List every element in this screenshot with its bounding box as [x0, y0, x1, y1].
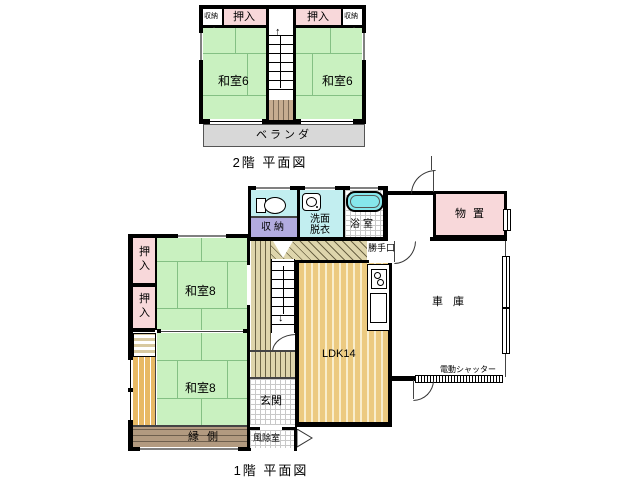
kitchen-counter [367, 264, 390, 331]
room-label: ベランダ [256, 129, 312, 141]
tatami-line [330, 28, 331, 53]
room-label: 和室8 [185, 285, 216, 298]
sink-icon [302, 193, 321, 211]
tatami-line [296, 53, 362, 54]
stair-lower-flight [269, 100, 293, 120]
room-label: 玄関 [260, 395, 282, 407]
sliding-door-opening [247, 265, 250, 305]
wall-segment [295, 422, 392, 427]
tatami-line [157, 398, 247, 399]
room-label: 風除室 [253, 434, 280, 444]
tatami-line [203, 95, 266, 96]
fusuma-line [157, 331, 247, 332]
door-leaf [394, 241, 395, 262]
window [305, 186, 335, 190]
tatami-line [296, 95, 362, 96]
floor2-title: 2階 平面図 [195, 152, 345, 171]
window [128, 392, 133, 420]
kitchen-sink-icon [370, 293, 387, 323]
hallway-floor [271, 350, 295, 377]
stair-arrow-up-icon: ↑ [275, 27, 281, 38]
window [178, 234, 226, 238]
wall-segment [341, 9, 343, 26]
tokonoma-shelf [133, 333, 156, 357]
room-label: 和室6 [218, 75, 249, 88]
tatami-line [203, 53, 266, 54]
door-arc-icon [413, 380, 434, 401]
boundary-line [431, 156, 432, 170]
room-label: 収納 [261, 222, 287, 233]
door-arc-icon [394, 241, 416, 264]
room-label: LDK14 [322, 348, 356, 360]
wall-segment [133, 328, 155, 332]
tatami-line [157, 308, 247, 309]
door-leaf [413, 380, 414, 399]
room-label: 収納 [204, 13, 218, 21]
bathtub-icon [346, 191, 384, 212]
stair-landing [269, 9, 293, 28]
floor-plan-page: 収納 押入 押入 収納 和室6 和室6 ↑ [0, 0, 640, 480]
tatami-line [157, 360, 247, 361]
stair-arrow-down-icon: ↓ [278, 313, 284, 324]
toilet-icon [264, 197, 286, 214]
room-washitsu8-lower [157, 333, 247, 425]
wall-segment [430, 237, 507, 241]
tatami-line [227, 360, 228, 398]
tatami-line [201, 333, 202, 360]
window [128, 360, 133, 388]
tatami-line [235, 28, 236, 53]
floor1-title: 1階 平面図 [196, 460, 346, 479]
door-leaf [433, 170, 434, 192]
room-label: 押入 [138, 293, 151, 321]
window [256, 186, 290, 190]
window [362, 33, 366, 60]
room-label: 押入 [307, 11, 329, 23]
room-label: 脱衣 [310, 225, 330, 236]
wall-segment [293, 9, 296, 121]
room-label: 洗面 [310, 214, 330, 225]
room-label: 縁側 [188, 431, 226, 443]
stair-direction-line [280, 36, 281, 88]
hiroen-strip [133, 357, 155, 425]
tatami-line [157, 261, 247, 262]
room-label: 勝手口 [368, 244, 395, 254]
room-label: 和室8 [185, 382, 216, 395]
hallway-floor [251, 241, 271, 377]
stair-direction-line [283, 266, 284, 314]
window [502, 256, 510, 308]
window [503, 209, 511, 231]
wall-segment [362, 5, 366, 124]
partition-line [155, 357, 156, 425]
window [350, 186, 378, 190]
window [502, 308, 510, 354]
partition-line [250, 350, 295, 352]
room-label: 車庫 [432, 296, 474, 308]
room-label: 押入 [233, 11, 255, 23]
room-label: 収納 [344, 13, 358, 21]
tatami-line [201, 398, 202, 425]
tatami-line [201, 238, 202, 261]
tatami-line [177, 261, 178, 308]
stairs-2f [269, 28, 293, 98]
room-label: 浴室 [350, 219, 376, 230]
window [140, 447, 238, 451]
tatami-line [312, 53, 313, 95]
room-label: 物置 [455, 208, 491, 220]
shutter-label: 電動シャッター [440, 366, 496, 375]
room-label: 押入 [138, 246, 151, 274]
window [255, 448, 289, 451]
room-label: 和室6 [322, 75, 353, 88]
wall-segment [222, 9, 224, 26]
stove-icon [371, 269, 387, 289]
tatami-line [177, 360, 178, 398]
tatami-line [201, 308, 202, 330]
window [199, 33, 203, 60]
door-swing-icon [297, 429, 313, 448]
tatami-line [227, 261, 228, 308]
